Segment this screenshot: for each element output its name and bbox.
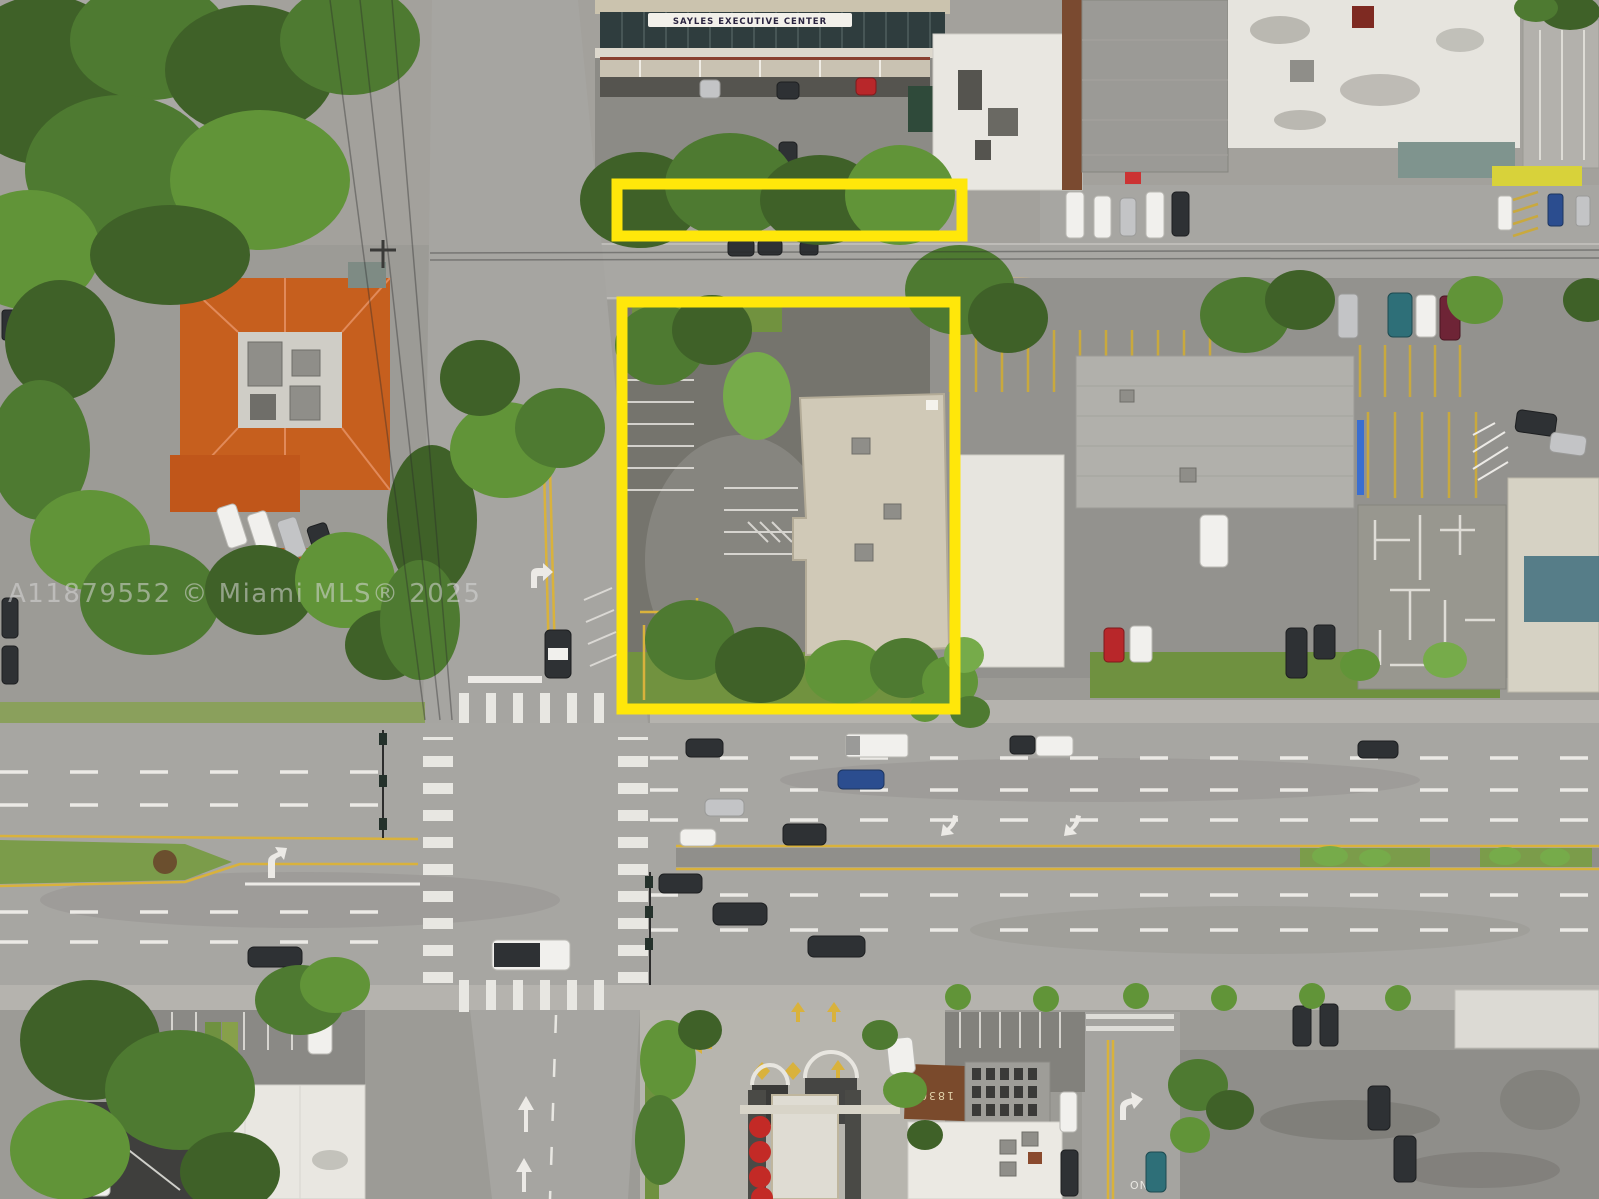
car — [1394, 1136, 1416, 1182]
car — [1314, 625, 1335, 659]
crosswalk-south — [455, 980, 617, 1012]
car — [1498, 196, 1512, 230]
white-roof-building-north — [933, 34, 1082, 190]
car — [838, 770, 884, 789]
car — [2, 646, 18, 684]
car — [659, 874, 702, 893]
car — [783, 824, 826, 845]
car — [1368, 1086, 1390, 1130]
car — [1388, 293, 1412, 337]
car — [1146, 1152, 1166, 1192]
car — [728, 240, 754, 256]
rooftop-unit — [1290, 60, 1314, 82]
crosswalk-west — [423, 737, 453, 985]
south-side-street — [470, 1010, 640, 1199]
white-building-east-of-parcel — [958, 455, 1064, 667]
gray-industrial-roof — [1076, 356, 1354, 508]
car — [1010, 736, 1035, 754]
car — [1060, 1092, 1077, 1132]
gray-window-row-building — [965, 1062, 1050, 1126]
main-road — [0, 693, 1599, 1012]
red-umbrella — [749, 1166, 771, 1188]
crosswalk-east — [618, 737, 648, 985]
car — [1293, 1006, 1311, 1046]
car — [1130, 626, 1152, 662]
car — [705, 799, 744, 816]
pickup-truck-intersection — [492, 940, 570, 970]
orange-wing — [170, 455, 300, 512]
car — [1549, 432, 1587, 457]
building-sign-text: SAYLES EXECUTIVE CENTER — [673, 17, 827, 27]
subject-building — [793, 394, 949, 655]
car — [1338, 294, 1358, 338]
car — [1172, 192, 1189, 236]
red-awning — [1125, 172, 1141, 184]
mls-watermark: A11879552 © Miami MLS® 2025 — [8, 579, 481, 609]
car — [700, 80, 720, 98]
car — [686, 739, 723, 757]
blue-tarp — [1357, 420, 1364, 495]
red-umbrella — [749, 1141, 771, 1163]
yellow-awning — [1492, 166, 1582, 186]
tan-building-far-right — [1508, 478, 1599, 692]
box-truck — [846, 734, 908, 757]
aerial-photo: ONLY — [0, 0, 1599, 1199]
car — [856, 78, 876, 95]
car — [1120, 198, 1136, 236]
red-umbrella — [749, 1116, 771, 1138]
car — [1146, 192, 1164, 238]
car — [777, 82, 799, 99]
car — [1576, 196, 1590, 226]
car — [1286, 628, 1307, 678]
screenshot-root: ONLY — [0, 0, 1599, 1199]
car — [808, 936, 865, 957]
gray-metal-roof-building — [1082, 0, 1228, 184]
police-car — [545, 630, 571, 678]
dark-teal-patch — [1524, 556, 1599, 622]
car — [1104, 628, 1124, 662]
rooftop-unit-red — [1352, 6, 1374, 28]
rust-wall-strip — [1062, 0, 1082, 190]
dumpster — [908, 86, 936, 132]
car — [1548, 194, 1563, 226]
white-strip-building-se — [1455, 990, 1599, 1048]
white-warehouse-roof — [1228, 0, 1520, 148]
crosswalk-north — [455, 693, 617, 723]
east-median — [676, 846, 1599, 869]
car — [1320, 1004, 1338, 1046]
car — [713, 903, 767, 925]
car — [1061, 1150, 1078, 1196]
car — [1358, 741, 1398, 758]
car — [248, 947, 302, 967]
right-edge-building — [1523, 20, 1599, 168]
car — [680, 829, 716, 846]
car — [1036, 736, 1073, 756]
executive-center-building: SAYLES EXECUTIVE CENTER — [595, 0, 950, 97]
white-van — [1200, 515, 1228, 567]
car — [1066, 192, 1084, 238]
car — [1094, 196, 1111, 238]
north-verge-grass — [0, 702, 425, 723]
car — [1416, 295, 1436, 337]
